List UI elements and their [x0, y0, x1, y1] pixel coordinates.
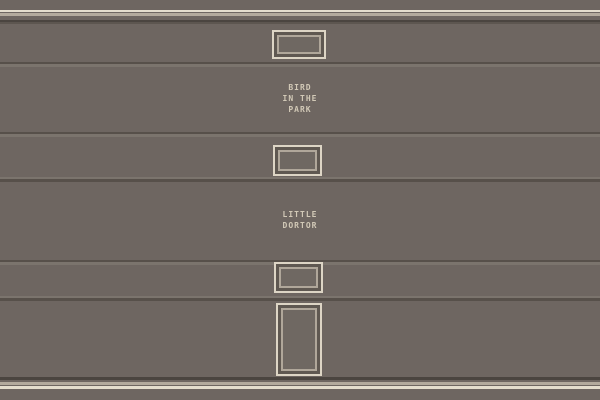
framed-sign-lower[interactable] — [274, 262, 323, 293]
room-label-line: DORTOR — [0, 220, 600, 231]
room-label-line: BIRD — [0, 82, 600, 93]
panel-groove-shadow — [0, 298, 600, 301]
cornice-line-dark-soft — [0, 22, 600, 24]
room-label-little-dortor: LITTLE DORTOR — [0, 209, 600, 231]
room-label-line: IN THE — [0, 93, 600, 104]
door[interactable] — [276, 303, 322, 376]
framed-sign-top[interactable] — [272, 30, 326, 59]
skirting-line-beige — [0, 382, 600, 385]
framed-sign-middle-panel — [278, 150, 317, 171]
room-label-line: PARK — [0, 104, 600, 115]
panel-groove-highlight — [0, 134, 600, 137]
building-wall-scene: BIRD IN THE PARK LITTLE DORTOR — [0, 0, 600, 400]
cornice-line-beige — [0, 13, 600, 16]
cornice-line-cream — [0, 10, 600, 12]
framed-sign-top-panel — [277, 35, 321, 54]
room-label-line: LITTLE — [0, 209, 600, 220]
panel-groove-highlight — [0, 64, 600, 67]
framed-sign-middle[interactable] — [273, 145, 322, 176]
skirting-line-cream — [0, 386, 600, 389]
framed-sign-lower-panel — [279, 267, 318, 288]
skirting-line-dark — [0, 377, 600, 380]
panel-groove-shadow — [0, 179, 600, 182]
room-label-bird-in-the-park: BIRD IN THE PARK — [0, 82, 600, 115]
door-panel — [281, 308, 317, 371]
